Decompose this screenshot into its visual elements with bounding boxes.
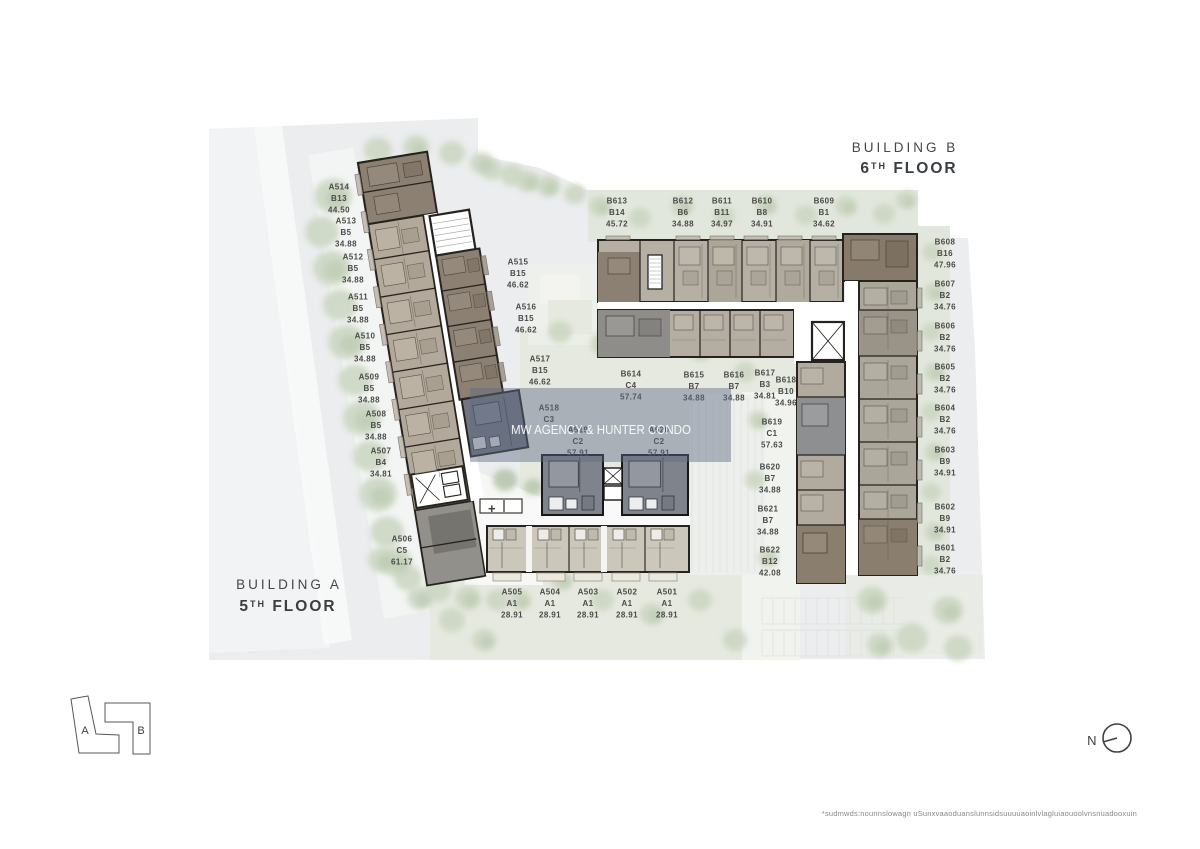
svg-text:B14: B14 [609, 208, 625, 217]
svg-text:B605: B605 [935, 363, 956, 372]
svg-text:34.62: 34.62 [813, 220, 835, 229]
svg-text:A515: A515 [508, 258, 529, 267]
svg-text:B15: B15 [532, 366, 548, 375]
svg-text:A504: A504 [540, 588, 561, 597]
svg-text:A510: A510 [355, 332, 376, 341]
svg-text:B4: B4 [375, 458, 386, 467]
svg-text:45.72: 45.72 [606, 220, 628, 229]
svg-text:B10: B10 [778, 387, 794, 396]
svg-text:B610: B610 [752, 197, 773, 206]
svg-text:A503: A503 [578, 588, 599, 597]
svg-text:A511: A511 [348, 293, 368, 302]
svg-text:A501: A501 [657, 588, 678, 597]
svg-text:42.08: 42.08 [759, 569, 781, 578]
svg-text:A517: A517 [530, 355, 551, 364]
svg-text:B1: B1 [818, 208, 829, 217]
svg-text:B618: B618 [776, 376, 797, 385]
svg-text:C5: C5 [396, 546, 407, 555]
svg-text:B5: B5 [363, 384, 374, 393]
svg-text:34.91: 34.91 [934, 526, 956, 535]
svg-text:A1: A1 [544, 599, 555, 608]
svg-text:BUILDING A: BUILDING A [236, 577, 342, 592]
svg-text:B604: B604 [935, 404, 956, 413]
svg-text:61.17: 61.17 [391, 558, 413, 567]
svg-text:+: + [488, 501, 496, 516]
svg-text:46.62: 46.62 [507, 281, 529, 290]
svg-text:46.62: 46.62 [529, 378, 551, 387]
svg-text:6TH FLOOR: 6TH FLOOR [860, 160, 957, 177]
svg-text:A509: A509 [359, 373, 380, 382]
svg-text:B620: B620 [760, 463, 781, 472]
svg-text:57.63: 57.63 [761, 441, 783, 450]
svg-text:28.91: 28.91 [539, 611, 561, 620]
svg-text:B617: B617 [755, 369, 776, 378]
svg-text:34.76: 34.76 [934, 345, 956, 354]
svg-text:A514: A514 [329, 183, 350, 192]
svg-text:34.88: 34.88 [347, 316, 369, 325]
svg-text:B612: B612 [673, 197, 694, 206]
svg-text:47.96: 47.96 [934, 261, 956, 270]
svg-text:46.62: 46.62 [515, 326, 537, 335]
svg-text:34.96: 34.96 [775, 399, 797, 408]
svg-text:B601: B601 [935, 544, 956, 553]
svg-text:B7: B7 [764, 474, 775, 483]
svg-text:B: B [137, 725, 144, 737]
svg-text:B6: B6 [677, 208, 688, 217]
svg-text:B9: B9 [939, 457, 950, 466]
svg-text:34.88: 34.88 [354, 355, 376, 364]
svg-text:B607: B607 [935, 280, 956, 289]
svg-text:BUILDING B: BUILDING B [852, 140, 959, 155]
svg-text:34.88: 34.88 [335, 240, 357, 249]
svg-text:34.88: 34.88 [358, 396, 380, 405]
svg-text:B5: B5 [359, 343, 370, 352]
svg-text:B609: B609 [814, 197, 835, 206]
svg-text:44.50: 44.50 [328, 206, 350, 215]
svg-text:B606: B606 [935, 322, 956, 331]
svg-text:B5: B5 [340, 228, 351, 237]
svg-text:B2: B2 [939, 415, 950, 424]
svg-text:B7: B7 [762, 516, 773, 525]
svg-text:A516: A516 [516, 303, 537, 312]
svg-text:B3: B3 [759, 380, 770, 389]
svg-text:34.97: 34.97 [711, 220, 733, 229]
svg-text:MW AGENCY & HUNTER CONDO: MW AGENCY & HUNTER CONDO [511, 422, 691, 437]
svg-text:B2: B2 [939, 333, 950, 342]
svg-text:B13: B13 [331, 194, 347, 203]
svg-text:A507: A507 [371, 447, 392, 456]
svg-text:B8: B8 [756, 208, 767, 217]
svg-text:B15: B15 [518, 314, 534, 323]
svg-text:C1: C1 [766, 429, 777, 438]
svg-text:B615: B615 [684, 371, 705, 380]
svg-text:B619: B619 [762, 418, 783, 427]
svg-text:34.88: 34.88 [757, 528, 779, 537]
svg-text:34.88: 34.88 [672, 220, 694, 229]
svg-text:34.91: 34.91 [934, 469, 956, 478]
svg-text:B5: B5 [370, 421, 381, 430]
svg-text:B15: B15 [510, 269, 526, 278]
svg-text:B12: B12 [762, 557, 778, 566]
svg-text:28.91: 28.91 [656, 611, 678, 620]
svg-text:B616: B616 [724, 371, 745, 380]
svg-text:28.91: 28.91 [616, 611, 638, 620]
svg-text:B603: B603 [935, 446, 956, 455]
svg-text:A502: A502 [617, 588, 638, 597]
svg-text:B11: B11 [714, 208, 730, 217]
svg-text:34.88: 34.88 [342, 276, 364, 285]
svg-text:28.91: 28.91 [501, 611, 523, 620]
svg-text:B2: B2 [939, 374, 950, 383]
svg-text:34.76: 34.76 [934, 386, 956, 395]
svg-text:34.76: 34.76 [934, 567, 956, 576]
svg-text:A: A [81, 725, 89, 737]
svg-text:B2: B2 [939, 291, 950, 300]
svg-text:B5: B5 [347, 264, 358, 273]
svg-text:34.88: 34.88 [365, 433, 387, 442]
svg-text:B613: B613 [607, 197, 628, 206]
svg-text:B608: B608 [935, 238, 956, 247]
svg-text:N: N [1087, 733, 1097, 748]
svg-text:*sudmwds:nounnslowagn uSunxvaa: *sudmwds:nounnslowagn uSunxvaaoduanslunn… [822, 809, 1137, 818]
svg-text:A505: A505 [502, 588, 523, 597]
svg-text:B9: B9 [939, 514, 950, 523]
svg-text:28.91: 28.91 [577, 611, 599, 620]
svg-text:B5: B5 [352, 304, 363, 313]
svg-text:A513: A513 [336, 217, 357, 226]
svg-text:A506: A506 [392, 535, 413, 544]
svg-text:B622: B622 [760, 546, 781, 555]
svg-text:A1: A1 [582, 599, 593, 608]
svg-text:B621: B621 [758, 505, 779, 514]
svg-text:B2: B2 [939, 555, 950, 564]
svg-text:A1: A1 [506, 599, 517, 608]
svg-text:B16: B16 [937, 249, 953, 258]
svg-text:A1: A1 [661, 599, 672, 608]
svg-text:34.88: 34.88 [759, 486, 781, 495]
svg-text:34.76: 34.76 [934, 303, 956, 312]
svg-text:34.76: 34.76 [934, 427, 956, 436]
svg-text:A512: A512 [343, 253, 364, 262]
svg-text:34.81: 34.81 [370, 470, 392, 479]
svg-text:B602: B602 [935, 503, 956, 512]
svg-text:34.91: 34.91 [751, 220, 773, 229]
svg-text:B611: B611 [712, 197, 732, 206]
svg-text:A1: A1 [621, 599, 632, 608]
svg-text:A508: A508 [366, 410, 387, 419]
svg-text:B614: B614 [621, 370, 642, 379]
svg-text:34.81: 34.81 [754, 392, 776, 401]
